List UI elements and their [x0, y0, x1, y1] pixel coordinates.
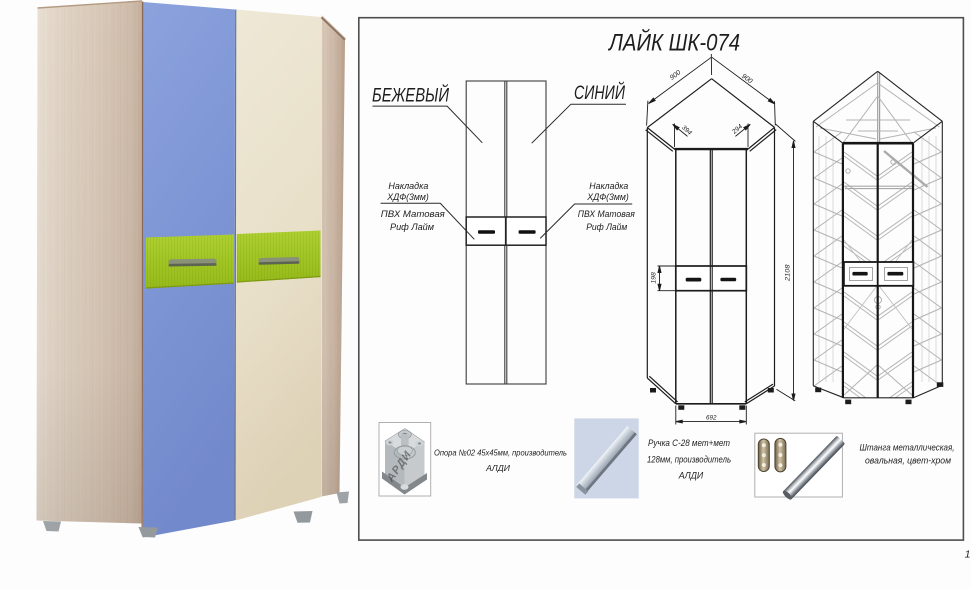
svg-text:394: 394: [680, 124, 693, 137]
svg-text:1: 1: [965, 549, 971, 561]
svg-text:ПВХ Матовая: ПВХ Матовая: [578, 208, 635, 219]
svg-text:Накладка: Накладка: [589, 180, 628, 191]
svg-text:198: 198: [650, 272, 657, 284]
svg-text:Штанга металлическая,: Штанга металлическая,: [860, 443, 955, 453]
svg-text:Ручка С-28 мет+мет: Ручка С-28 мет+мет: [648, 438, 730, 448]
svg-text:ХДФ(3мм): ХДФ(3мм): [586, 191, 628, 202]
svg-text:овальная, цвет-хром: овальная, цвет-хром: [865, 456, 951, 466]
svg-text:Риф Лайм: Риф Лайм: [586, 221, 628, 232]
svg-text:АЛДИ: АЛДИ: [485, 463, 511, 473]
svg-text:ЛАЙК ШК-074: ЛАЙК ШК-074: [607, 29, 740, 57]
svg-text:СИНИЙ: СИНИЙ: [574, 82, 625, 104]
svg-text:АЛДИ: АЛДИ: [678, 471, 704, 481]
svg-text:692: 692: [706, 414, 717, 421]
svg-text:ПВХ Матовая: ПВХ Матовая: [381, 208, 445, 219]
svg-text:Опора №02 45х45мм, производите: Опора №02 45х45мм, производитель: [434, 448, 567, 458]
svg-text:БЕЖЕВЫЙ: БЕЖЕВЫЙ: [372, 84, 449, 107]
svg-text:2108: 2108: [784, 264, 791, 282]
svg-text:128мм, производитель: 128мм, производитель: [647, 455, 731, 465]
svg-text:ХДФ(3мм): ХДФ(3мм): [386, 191, 428, 202]
svg-text:Риф Лайм: Риф Лайм: [390, 221, 435, 232]
svg-text:Накладка: Накладка: [388, 180, 428, 191]
